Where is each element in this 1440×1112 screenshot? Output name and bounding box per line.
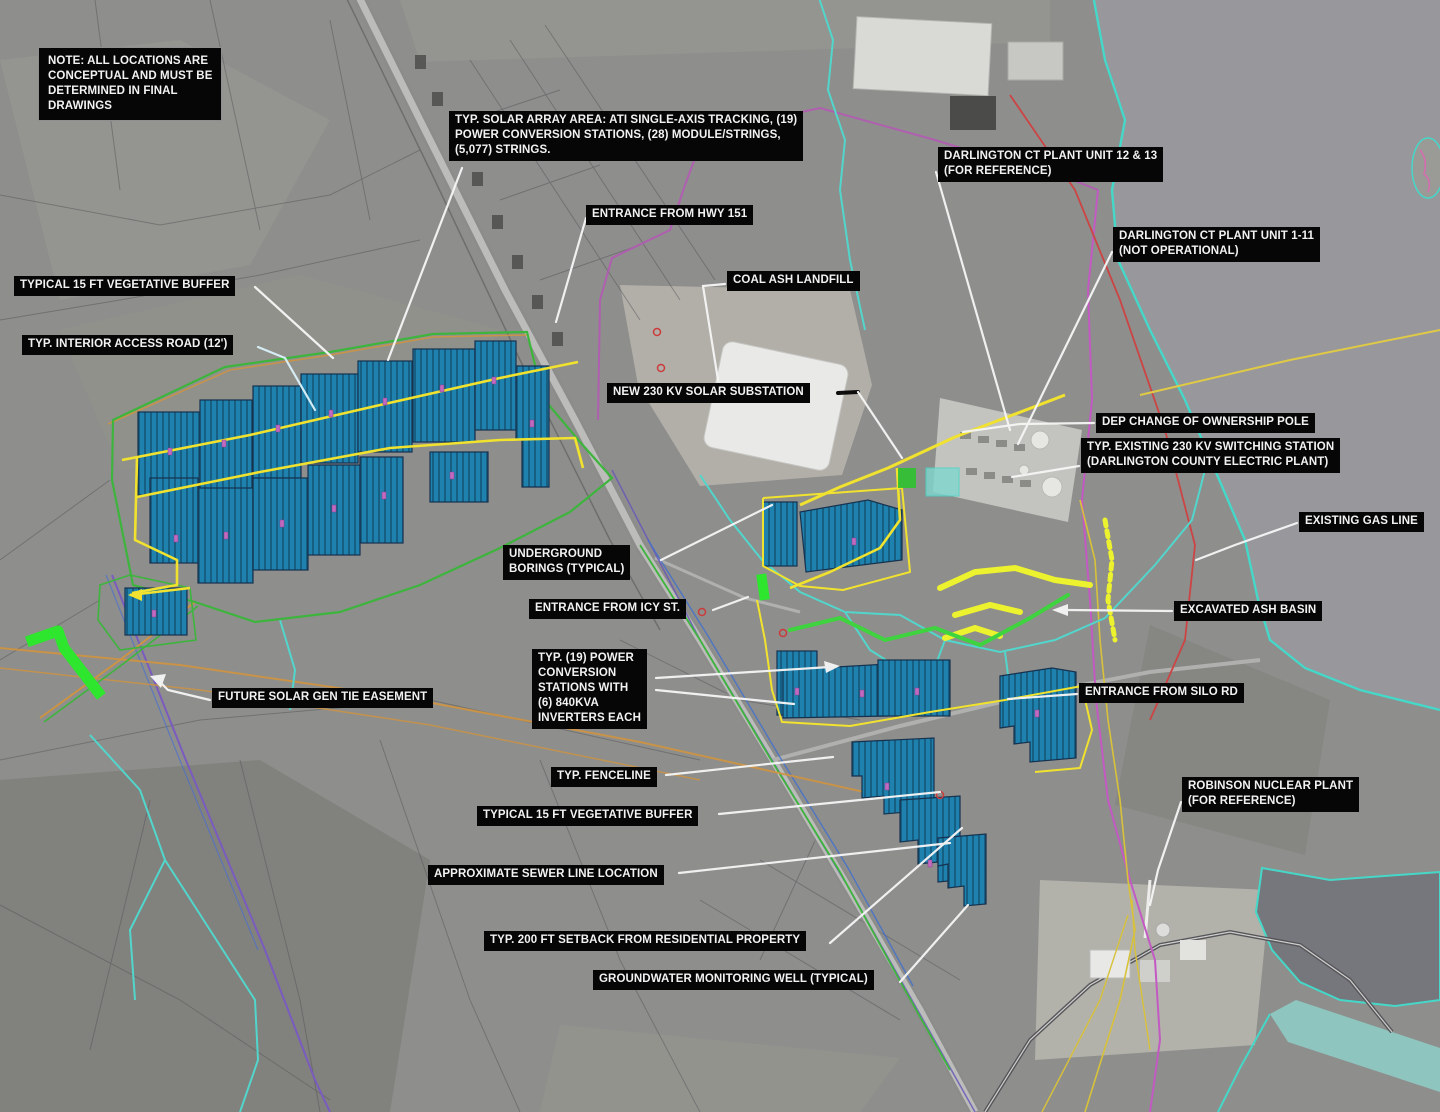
dam-pond [1256,868,1440,1006]
easement-highlight-ribbon [32,631,98,692]
label-vegetative-buffer-north: TYPICAL 15 FT VEGETATIVE BUFFER [14,276,235,296]
label-sewer-line: APPROXIMATE SEWER LINE LOCATION [428,865,664,885]
label-new-solar-substation: NEW 230 KV SOLAR SUBSTATION [607,383,810,403]
leader-groundwater [900,905,968,982]
leader-icy [713,597,748,610]
note-box: NOTE: ALL LOCATIONS ARE CONCEPTUAL AND M… [38,47,222,121]
label-vegetative-buffer-south: TYPICAL 15 FT VEGETATIVE BUFFER [477,806,698,826]
leader-sewer [679,843,950,873]
storage-tank-2 [1042,477,1062,497]
label-darlington-unit-1-11: DARLINGTON CT PLANT UNIT 1-11 (NOT OPERA… [1113,227,1320,262]
label-coal-ash-landfill: COAL ASH LANDFILL [727,271,860,291]
label-groundwater-well: GROUNDWATER MONITORING WELL (TYPICAL) [593,970,874,990]
ownership-pole-highlight [898,468,916,488]
label-entrance-icy-st: ENTRANCE FROM ICY ST. [529,599,686,619]
site-plan-map: NOTE: ALL LOCATIONS ARE CONCEPTUAL AND M… [0,0,1440,1112]
island [1412,138,1440,198]
label-darlington-unit-12-13: DARLINGTON CT PLANT UNIT 12 & 13 (FOR RE… [938,147,1163,182]
substation-highlight [926,468,959,496]
leader-hwy-151 [556,218,586,322]
label-future-gen-tie-easement: FUTURE SOLAR GEN TIE EASEMENT [212,688,433,708]
leader-ash-basin-arrow [1052,604,1068,616]
leader-substation [858,392,902,458]
label-fenceline: TYP. FENCELINE [551,767,657,787]
label-solar-array-area: TYP. SOLAR ARRAY AREA: ATI SINGLE-AXIS T… [449,111,803,161]
label-robinson-nuclear-plant: ROBINSON NUCLEAR PLANT (FOR REFERENCE) [1182,777,1359,812]
label-interior-access-road: TYP. INTERIOR ACCESS ROAD (12') [22,335,233,355]
label-existing-gas-line: EXISTING GAS LINE [1299,512,1424,532]
leader-substation-dash [838,392,858,393]
label-excavated-ash-basin: EXCAVATED ASH BASIN [1174,601,1322,621]
industrial-building-north [853,17,992,96]
entrance-highlight-icy [756,573,770,600]
building-north-2 [1008,42,1063,80]
label-underground-borings: UNDERGROUND BORINGS (TYPICAL) [503,545,630,580]
tailrace-canal [1270,1000,1440,1092]
leader-darlington-12-13 [936,172,1010,430]
label-residential-setback: TYP. 200 FT SETBACK FROM RESIDENTIAL PRO… [484,931,806,951]
label-switching-station: TYP. EXISTING 230 KV SWITCHING STATION (… [1081,438,1340,473]
leader-fenceline [666,757,833,775]
storage-tank-1 [1031,431,1049,449]
label-entrance-hwy-151: ENTRANCE FROM HWY 151 [586,205,753,225]
roadside-structures [415,55,563,346]
label-entrance-silo-rd: ENTRANCE FROM SILO RD [1079,683,1244,703]
label-power-conversion-stations: TYP. (19) POWER CONVERSION STATIONS WITH… [532,649,647,729]
dark-lot-north [950,96,996,130]
label-dep-ownership-pole: DEP CHANGE OF OWNERSHIP POLE [1096,413,1315,433]
leader-ash-basin [1066,610,1172,611]
